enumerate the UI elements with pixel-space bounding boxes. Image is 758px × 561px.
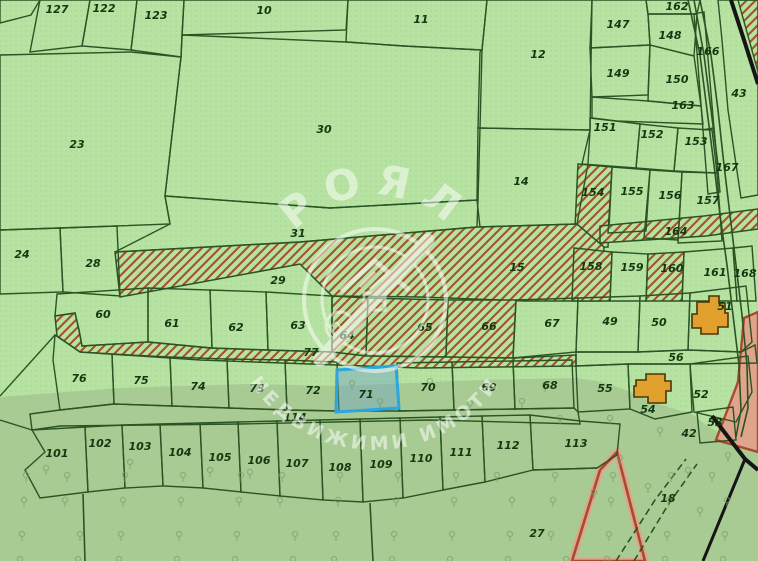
parcel-label-161: 161 bbox=[704, 266, 727, 279]
parcel-label-160: 160 bbox=[661, 262, 684, 275]
parcel-label-155: 155 bbox=[621, 185, 644, 198]
parcel-label-28: 28 bbox=[85, 257, 101, 270]
parcel-label-112: 112 bbox=[497, 439, 520, 452]
parcel-label-27: 27 bbox=[529, 527, 545, 540]
parcel-label-151: 151 bbox=[594, 121, 617, 134]
parcel-label-167: 167 bbox=[716, 161, 739, 174]
parcel-label-23: 23 bbox=[69, 138, 85, 151]
parcel-label-66: 66 bbox=[481, 320, 497, 333]
parcel-label-51: 51 bbox=[717, 300, 732, 313]
parcel-label-29: 29 bbox=[270, 274, 286, 287]
parcel-label-166: 166 bbox=[697, 45, 720, 58]
parcel-label-62: 62 bbox=[228, 321, 244, 334]
parcel-label-113: 113 bbox=[565, 437, 588, 450]
parcel-label-53: 53 bbox=[707, 416, 723, 429]
parcel-label-10: 10 bbox=[256, 4, 272, 17]
parcel-label-168: 168 bbox=[734, 267, 757, 280]
parcel-label-106: 106 bbox=[248, 454, 271, 467]
parcel-label-61: 61 bbox=[164, 317, 179, 330]
parcel-label-18: 18 bbox=[660, 492, 676, 505]
parcel-label-42: 42 bbox=[680, 427, 697, 440]
parcel-65[interactable] bbox=[366, 298, 448, 357]
parcel-label-127: 127 bbox=[46, 3, 69, 16]
parcel-158[interactable] bbox=[572, 248, 612, 301]
parcel-label-49: 49 bbox=[601, 315, 618, 328]
parcel-label-147: 147 bbox=[607, 18, 630, 31]
parcel-label-162: 162 bbox=[666, 0, 689, 13]
parcel-label-60: 60 bbox=[95, 308, 111, 321]
parcel-label-152: 152 bbox=[641, 128, 664, 141]
parcel-label-164: 164 bbox=[665, 225, 688, 238]
parcel-label-101: 101 bbox=[46, 447, 69, 460]
parcel-label-123: 123 bbox=[145, 9, 168, 22]
parcel-label-111: 111 bbox=[450, 446, 473, 459]
parcel-label-68: 68 bbox=[542, 379, 558, 392]
parcel-label-149: 149 bbox=[607, 67, 630, 80]
map-canvas[interactable]: 1271221231011122330147162148166149150163… bbox=[0, 0, 758, 561]
parcel-label-153: 153 bbox=[685, 135, 708, 148]
parcel-label-158: 158 bbox=[580, 260, 603, 273]
parcel-label-163: 163 bbox=[672, 99, 695, 112]
parcel-label-71: 71 bbox=[358, 388, 373, 401]
parcel-label-11: 11 bbox=[413, 13, 428, 26]
parcel-label-67: 67 bbox=[544, 317, 560, 330]
parcel-label-55: 55 bbox=[597, 382, 613, 395]
parcel-label-15: 15 bbox=[509, 261, 525, 274]
parcel-label-157: 157 bbox=[697, 194, 720, 207]
parcel-label-109: 109 bbox=[370, 458, 393, 471]
parcel-label-150: 150 bbox=[666, 73, 689, 86]
cadastral-map[interactable]: 1271221231011122330147162148166149150163… bbox=[0, 0, 758, 561]
parcel-label-122: 122 bbox=[93, 2, 116, 15]
parcel-label-54: 54 bbox=[640, 403, 655, 416]
parcel-label-76: 76 bbox=[71, 372, 87, 385]
parcel-label-52: 52 bbox=[693, 388, 709, 401]
parcel-label-43: 43 bbox=[730, 87, 747, 100]
parcel-label-30: 30 bbox=[316, 123, 332, 136]
parcel-label-50: 50 bbox=[651, 316, 667, 329]
parcel-label-12: 12 bbox=[530, 48, 546, 61]
parcel-label-14: 14 bbox=[513, 175, 528, 188]
parcel-label-110: 110 bbox=[410, 452, 433, 465]
parcel-label-154: 154 bbox=[582, 186, 605, 199]
parcel-label-148: 148 bbox=[659, 29, 682, 42]
parcel-label-24: 24 bbox=[14, 248, 29, 261]
parcel-label-108: 108 bbox=[329, 461, 352, 474]
parcel-label-159: 159 bbox=[621, 261, 644, 274]
parcel-label-102: 102 bbox=[89, 437, 112, 450]
parcel-label-56: 56 bbox=[668, 351, 684, 364]
parcel-label-72: 72 bbox=[305, 384, 321, 397]
parcel-label-63: 63 bbox=[290, 319, 306, 332]
parcel-label-156: 156 bbox=[659, 189, 682, 202]
parcel-label-70: 70 bbox=[420, 381, 436, 394]
parcel-label-103: 103 bbox=[129, 440, 152, 453]
parcel-label-75: 75 bbox=[133, 374, 149, 387]
parcel-label-104: 104 bbox=[169, 446, 192, 459]
parcel-label-107: 107 bbox=[286, 457, 309, 470]
parcel-label-74: 74 bbox=[190, 380, 205, 393]
parcel-label-105: 105 bbox=[209, 451, 232, 464]
